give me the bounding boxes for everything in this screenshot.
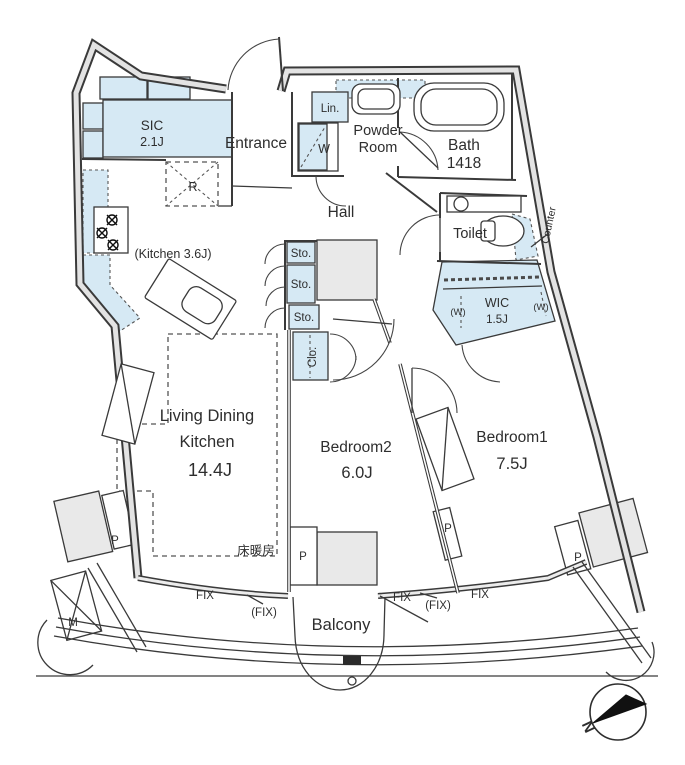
bedroom1-label: Bedroom1 (476, 429, 548, 446)
kitchen-island-group (144, 258, 236, 339)
entrance-step (232, 186, 292, 188)
bathtub (414, 83, 504, 131)
toilet-door-arc (400, 215, 440, 255)
toilet-tank (447, 196, 521, 212)
closet-door-arc-1 (330, 334, 356, 360)
shoe-box-2 (83, 131, 103, 158)
ldk-label-2: Kitchen (179, 433, 234, 451)
entrance-label: Entrance (225, 135, 287, 152)
bath-size: 1418 (447, 155, 481, 172)
pipe-space (317, 240, 377, 300)
refrigerator-label: R (188, 180, 197, 194)
ldk-furniture-group (102, 364, 154, 444)
sic-area (103, 100, 232, 157)
powder-room-label-1: Powder (353, 123, 402, 139)
fix-label-2: FIX (393, 592, 411, 604)
wic-size: 1.5J (486, 314, 508, 326)
ldk-size: 14.4J (188, 460, 232, 480)
shoe-box-1 (83, 103, 103, 129)
fix-paren-label-1: (FIX) (251, 607, 277, 619)
compass-north-label: N (578, 719, 598, 736)
storage-door-arc-3 (266, 287, 285, 306)
wic-hanger-label-left: (W) (450, 307, 465, 318)
storage-label-3: Sto. (294, 312, 314, 324)
pillar-bottom-center (317, 532, 377, 585)
floor-heating-label: 床暖房 (237, 543, 275, 558)
floor-plan-page: N SIC 2.1J Entrance Lin. W Powder Room B… (0, 0, 685, 765)
wic-door-arc (462, 345, 500, 382)
powder-room-label-2: Room (359, 140, 398, 156)
wic-hanger-label-right: (W) (533, 302, 548, 313)
closet-label: Clo. (307, 347, 319, 367)
storage-door-arc-2 (265, 266, 285, 286)
ldk-label-1: Living Dining (160, 407, 254, 425)
wic-label: WIC (485, 296, 509, 310)
compass: N (578, 684, 646, 740)
linen-label: Lin. (321, 103, 340, 115)
hall-label: Hall (328, 204, 355, 221)
fix-label-1: FIX (196, 590, 214, 602)
sic-label: SIC (141, 118, 164, 133)
meter-label: M (68, 617, 78, 629)
balcony-label: Balcony (312, 616, 371, 634)
closet-door-arc-2 (330, 356, 356, 382)
storage-label-2: Sto. (291, 279, 311, 291)
fix-label-3: FIX (471, 589, 489, 601)
pillar-label-4: P (574, 552, 582, 564)
bedroom1-furniture-group (416, 407, 474, 490)
bedroom2-label: Bedroom2 (320, 439, 392, 456)
sic-size: 2.1J (140, 135, 164, 149)
pillar-label-3: P (444, 523, 452, 535)
powder-door-arc (316, 176, 346, 206)
bedroom1-size: 7.5J (496, 455, 527, 473)
storage-label-1: Sto. (291, 248, 311, 260)
storage-door-arc-1 (265, 244, 285, 264)
pillar-label-1: P (111, 535, 119, 547)
bath-label: Bath (448, 137, 480, 154)
toilet-label: Toilet (453, 226, 487, 242)
entrance-door-arc (228, 39, 279, 90)
balcony-drain (348, 677, 356, 685)
washer-label: W (318, 142, 330, 156)
fix-paren-label-2: (FIX) (425, 600, 451, 612)
kitchen-island (144, 258, 236, 339)
pillar-bottom-right-group (553, 498, 648, 575)
kitchen-label: (Kitchen 3.6J) (134, 247, 211, 261)
floor-plan-svg: N SIC 2.1J Entrance Lin. W Powder Room B… (0, 0, 685, 765)
bedroom1-door-arc (412, 368, 457, 413)
pillar-bottom-left-group (54, 486, 136, 562)
balcony-hatch (343, 656, 361, 665)
bedroom2-size: 6.0J (341, 464, 372, 482)
storage-door-arc-4 (265, 308, 285, 328)
pillar-label-2: P (299, 551, 307, 563)
